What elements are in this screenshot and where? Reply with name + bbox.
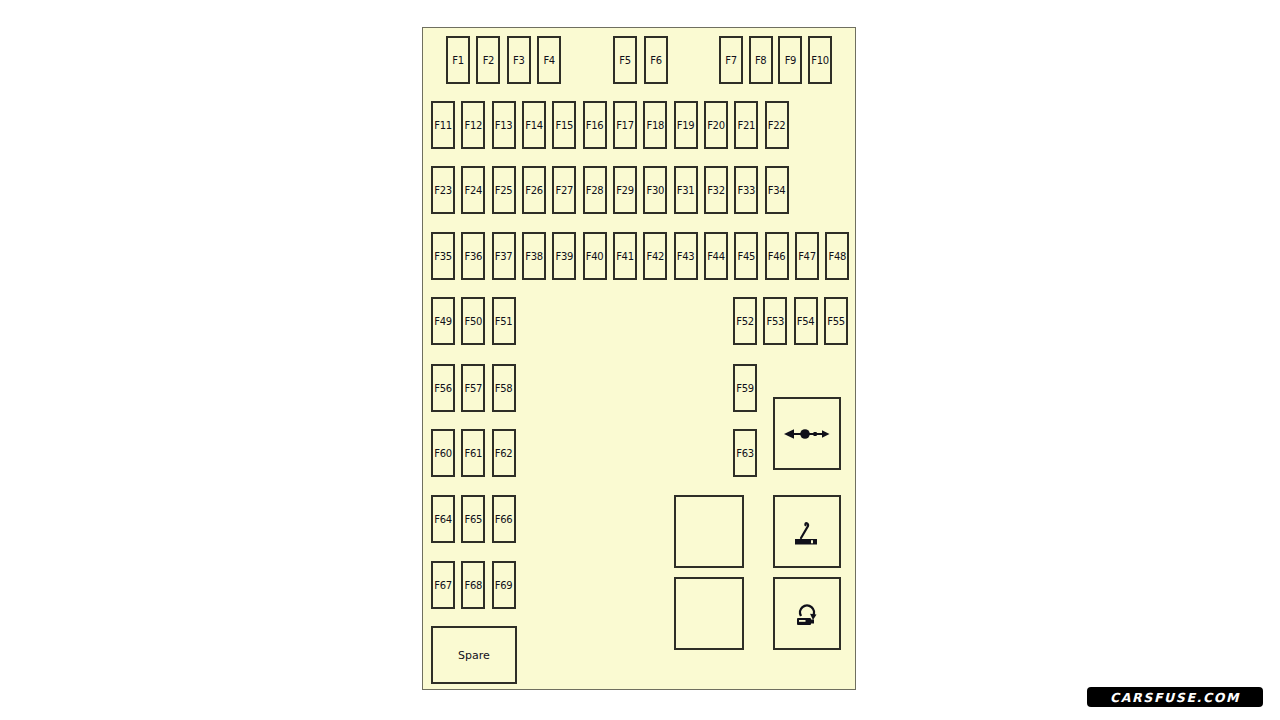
fuse-label: F25 bbox=[495, 185, 513, 196]
fuse-f67: F67 bbox=[431, 561, 455, 609]
fuse-f22: F22 bbox=[765, 101, 789, 149]
fuse-f20: F20 bbox=[704, 101, 728, 149]
fuse-label: F19 bbox=[677, 120, 695, 131]
fuse-label: F50 bbox=[465, 316, 483, 327]
fuse-label: F40 bbox=[586, 251, 604, 262]
fuse-f18: F18 bbox=[643, 101, 667, 149]
fuse-f13: F13 bbox=[492, 101, 516, 149]
spare-label: Spare bbox=[458, 649, 490, 662]
fuse-box-panel: F1F2F3F4F5F6F7F8F9F10F11F12F13F14F15F16F… bbox=[422, 27, 856, 690]
fuse-f14: F14 bbox=[522, 101, 546, 149]
fuse-label: F55 bbox=[827, 316, 845, 327]
fuse-label: F6 bbox=[650, 55, 662, 66]
fuse-label: F18 bbox=[647, 120, 665, 131]
fuse-label: F60 bbox=[434, 448, 452, 459]
fuse-f58: F58 bbox=[492, 364, 516, 412]
fuse-label: F43 bbox=[677, 251, 695, 262]
fuse-f17: F17 bbox=[613, 101, 637, 149]
fuse-label: F13 bbox=[495, 120, 513, 131]
fuse-label: F15 bbox=[556, 120, 574, 131]
fuse-f27: F27 bbox=[552, 166, 576, 214]
fuse-f68: F68 bbox=[461, 561, 485, 609]
fuse-f4: F4 bbox=[537, 36, 561, 84]
fuse-f47: F47 bbox=[795, 232, 819, 280]
fuse-f10: F10 bbox=[808, 36, 832, 84]
fuse-label: F5 bbox=[619, 55, 631, 66]
fuse-f57: F57 bbox=[461, 364, 485, 412]
fuse-f24: F24 bbox=[461, 166, 485, 214]
empty-relay-box-2 bbox=[674, 577, 744, 650]
fuse-f25: F25 bbox=[492, 166, 516, 214]
fuse-label: F34 bbox=[768, 185, 786, 196]
fuse-f54: F54 bbox=[794, 297, 818, 345]
fuse-label: F35 bbox=[434, 251, 452, 262]
fuse-f48: F48 bbox=[825, 232, 849, 280]
fuse-label: F14 bbox=[525, 120, 543, 131]
fuse-f2: F2 bbox=[476, 36, 500, 84]
fuse-label: F48 bbox=[828, 251, 846, 262]
fuse-f51: F51 bbox=[492, 297, 516, 345]
fuse-f41: F41 bbox=[613, 232, 637, 280]
relay-box-axle bbox=[773, 397, 841, 470]
fuse-label: F36 bbox=[465, 251, 483, 262]
fuse-f61: F61 bbox=[461, 429, 485, 477]
fuse-label: F61 bbox=[465, 448, 483, 459]
relay-box-cigarette-lighter bbox=[773, 495, 841, 568]
fuse-f38: F38 bbox=[522, 232, 546, 280]
fuse-f29: F29 bbox=[613, 166, 637, 214]
fuse-label: F22 bbox=[768, 120, 786, 131]
empty-relay-box-1 bbox=[674, 495, 744, 568]
fuse-label: F62 bbox=[495, 448, 513, 459]
fuse-f3: F3 bbox=[507, 36, 531, 84]
fuse-label: F23 bbox=[434, 185, 452, 196]
fuse-label: F16 bbox=[586, 120, 604, 131]
fuse-f39: F39 bbox=[552, 232, 576, 280]
fuse-f15: F15 bbox=[552, 101, 576, 149]
fuse-label: F46 bbox=[768, 251, 786, 262]
fuse-label: F44 bbox=[707, 251, 725, 262]
fuse-label: F67 bbox=[434, 580, 452, 591]
fuse-label: F1 bbox=[452, 55, 464, 66]
fuse-f53: F53 bbox=[763, 297, 787, 345]
fuse-label: F53 bbox=[767, 316, 785, 327]
fuse-label: F29 bbox=[616, 185, 634, 196]
fuse-f37: F37 bbox=[492, 232, 516, 280]
fuse-f55: F55 bbox=[824, 297, 848, 345]
fuse-f44: F44 bbox=[704, 232, 728, 280]
fuse-label: F51 bbox=[495, 316, 513, 327]
fuse-f16: F16 bbox=[583, 101, 607, 149]
fuse-label: F63 bbox=[736, 448, 754, 459]
spare-box: Spare bbox=[431, 626, 517, 684]
fuse-f50: F50 bbox=[461, 297, 485, 345]
fuse-label: F59 bbox=[736, 383, 754, 394]
fuse-label: F7 bbox=[725, 55, 737, 66]
axle-double-arrow-icon bbox=[784, 426, 830, 442]
fuse-label: F11 bbox=[434, 120, 452, 131]
fuse-f65: F65 bbox=[461, 495, 485, 543]
fuse-label: F52 bbox=[736, 316, 754, 327]
fuse-f40: F40 bbox=[583, 232, 607, 280]
fuse-label: F69 bbox=[495, 580, 513, 591]
fuse-label: F49 bbox=[434, 316, 452, 327]
fuse-f32: F32 bbox=[704, 166, 728, 214]
fuse-label: F27 bbox=[556, 185, 574, 196]
fuse-label: F26 bbox=[525, 185, 543, 196]
fuse-f42: F42 bbox=[643, 232, 667, 280]
fuse-f31: F31 bbox=[674, 166, 698, 214]
fuse-f35: F35 bbox=[431, 232, 455, 280]
fuse-f59: F59 bbox=[733, 364, 757, 412]
fuse-label: F57 bbox=[465, 383, 483, 394]
fuse-label: F9 bbox=[785, 55, 797, 66]
fuse-label: F64 bbox=[434, 514, 452, 525]
fuse-f34: F34 bbox=[765, 166, 789, 214]
fuse-f43: F43 bbox=[674, 232, 698, 280]
fuse-label: F54 bbox=[797, 316, 815, 327]
fuse-label: F10 bbox=[811, 55, 829, 66]
fuse-label: F39 bbox=[556, 251, 574, 262]
fuse-label: F45 bbox=[738, 251, 756, 262]
carsfuse-watermark: CARSFUSE.COM bbox=[1087, 687, 1263, 707]
fuse-label: F8 bbox=[755, 55, 767, 66]
fuse-f26: F26 bbox=[522, 166, 546, 214]
fuse-f19: F19 bbox=[674, 101, 698, 149]
fuse-label: F3 bbox=[513, 55, 525, 66]
fuse-f9: F9 bbox=[778, 36, 802, 84]
fuse-label: F30 bbox=[647, 185, 665, 196]
fuse-f1: F1 bbox=[446, 36, 470, 84]
fuse-f66: F66 bbox=[492, 495, 516, 543]
fuse-label: F21 bbox=[738, 120, 756, 131]
fuse-label: F4 bbox=[543, 55, 555, 66]
fuse-f8: F8 bbox=[749, 36, 773, 84]
cigarette-lighter-icon bbox=[793, 518, 821, 546]
fuse-f30: F30 bbox=[643, 166, 667, 214]
power-outlet-plug-icon bbox=[793, 600, 821, 628]
fuse-label: F47 bbox=[798, 251, 816, 262]
fuse-label: F28 bbox=[586, 185, 604, 196]
watermark-text: CARSFUSE.COM bbox=[1110, 690, 1240, 705]
fuse-f5: F5 bbox=[613, 36, 637, 84]
fuse-f46: F46 bbox=[765, 232, 789, 280]
fuse-label: F66 bbox=[495, 514, 513, 525]
fuse-f56: F56 bbox=[431, 364, 455, 412]
relay-box-power-outlet bbox=[773, 577, 841, 650]
fuse-f7: F7 bbox=[719, 36, 743, 84]
fuse-f52: F52 bbox=[733, 297, 757, 345]
fuse-f60: F60 bbox=[431, 429, 455, 477]
fuse-label: F24 bbox=[465, 185, 483, 196]
fuse-f63: F63 bbox=[733, 429, 757, 477]
fuse-f23: F23 bbox=[431, 166, 455, 214]
fuse-f11: F11 bbox=[431, 101, 455, 149]
fuse-f45: F45 bbox=[734, 232, 758, 280]
fuse-label: F41 bbox=[616, 251, 634, 262]
fuse-label: F20 bbox=[707, 120, 725, 131]
fuse-label: F33 bbox=[738, 185, 756, 196]
fuse-label: F32 bbox=[707, 185, 725, 196]
fuse-f49: F49 bbox=[431, 297, 455, 345]
fuse-f64: F64 bbox=[431, 495, 455, 543]
fuse-f33: F33 bbox=[734, 166, 758, 214]
fuse-label: F17 bbox=[616, 120, 634, 131]
fuse-label: F31 bbox=[677, 185, 695, 196]
fuse-f21: F21 bbox=[734, 101, 758, 149]
fuse-f36: F36 bbox=[461, 232, 485, 280]
fuse-f12: F12 bbox=[461, 101, 485, 149]
fuse-label: F12 bbox=[465, 120, 483, 131]
fuse-label: F58 bbox=[495, 383, 513, 394]
fuse-f62: F62 bbox=[492, 429, 516, 477]
fuse-label: F42 bbox=[647, 251, 665, 262]
fuse-label: F38 bbox=[525, 251, 543, 262]
fuse-f28: F28 bbox=[583, 166, 607, 214]
fuse-label: F68 bbox=[465, 580, 483, 591]
fuse-f6: F6 bbox=[644, 36, 668, 84]
fuse-f69: F69 bbox=[492, 561, 516, 609]
fuse-label: F37 bbox=[495, 251, 513, 262]
fuse-label: F65 bbox=[465, 514, 483, 525]
page: F1F2F3F4F5F6F7F8F9F10F11F12F13F14F15F16F… bbox=[0, 0, 1280, 720]
fuse-label: F2 bbox=[483, 55, 495, 66]
fuse-label: F56 bbox=[434, 383, 452, 394]
